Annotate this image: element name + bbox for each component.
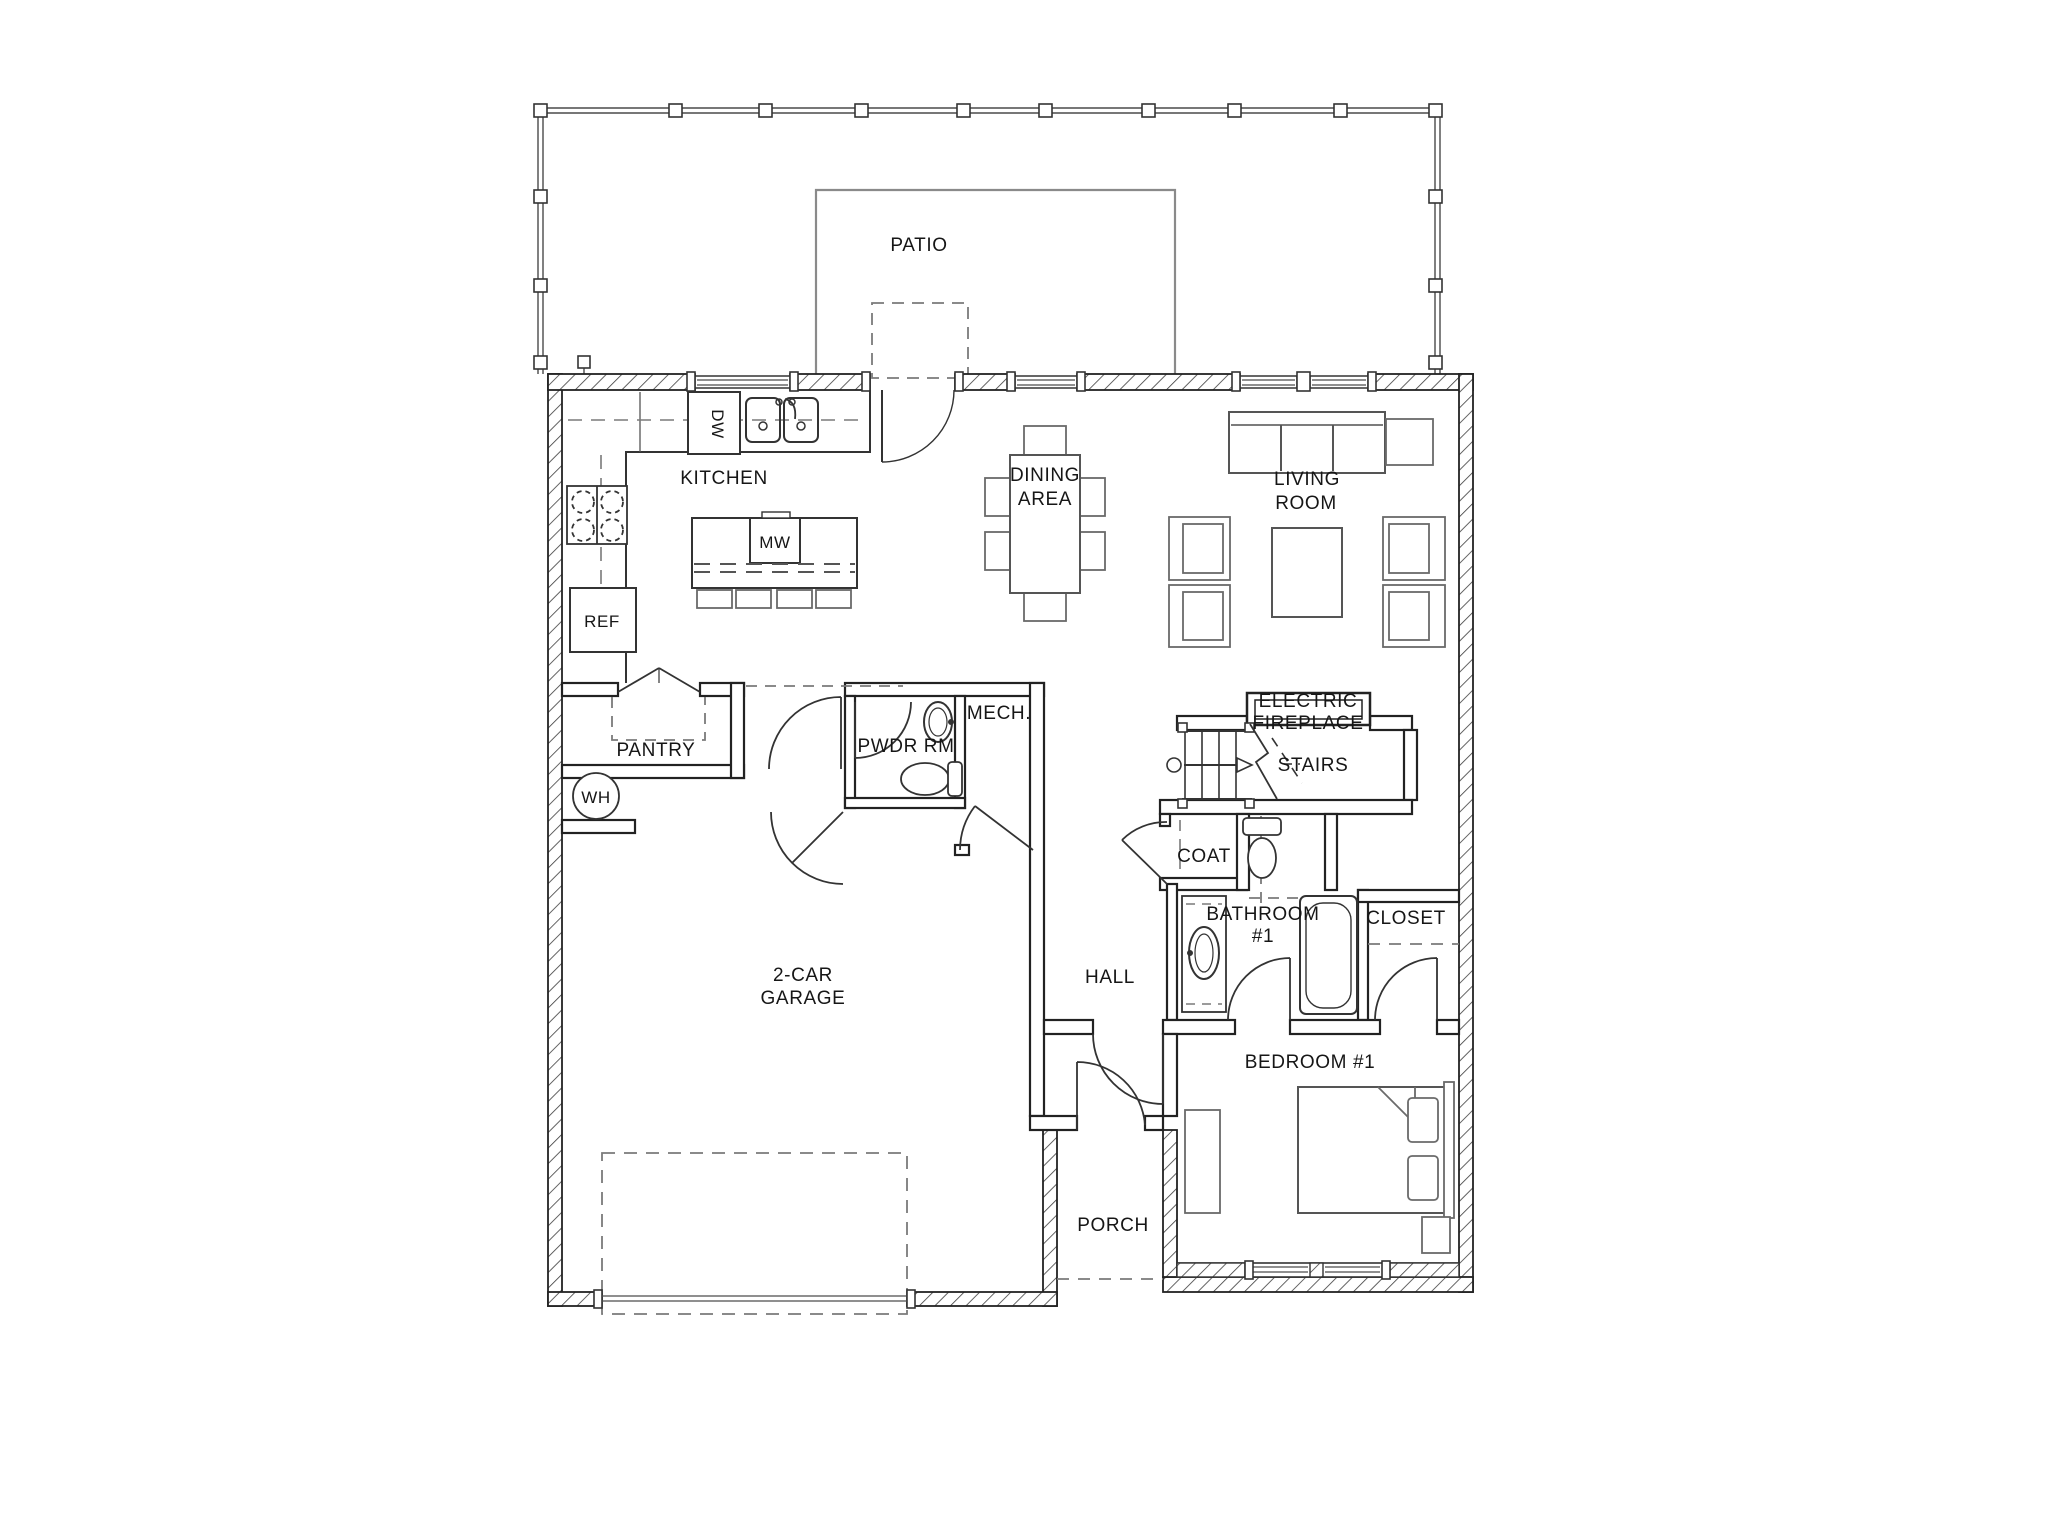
living-room-furniture [1169, 412, 1445, 647]
side-table [1386, 419, 1433, 465]
label-hall: HALL [1085, 967, 1135, 988]
kitchen-hall-door [769, 697, 841, 769]
bathroom-door [1228, 958, 1290, 1020]
mech-room [960, 806, 1033, 850]
label-living-2: ROOM [1275, 493, 1337, 514]
garage-entry-door [771, 812, 843, 884]
bedroom-windows [1177, 1261, 1459, 1279]
stair-newel [1167, 758, 1181, 772]
label-living-1: LIVING [1274, 469, 1340, 490]
patio-door [882, 390, 954, 462]
pantry-doors [618, 668, 700, 692]
fence-posts [534, 104, 1442, 369]
nightstand [1422, 1217, 1450, 1253]
pantry-shelves-dashed [612, 697, 705, 740]
label-pantry: PANTRY [617, 740, 696, 761]
bedroom-closet [1368, 944, 1459, 1020]
coat-closet [1122, 820, 1180, 884]
kitchen-island [692, 512, 857, 608]
label-fireplace-2: FIREPLACE [1253, 713, 1364, 734]
sofa [1229, 412, 1385, 473]
coffee-table [1272, 528, 1342, 617]
mud-hall-doors [746, 686, 903, 884]
label-patio: PATIO [890, 235, 947, 256]
label-fireplace-1: ELECTRIC [1259, 691, 1358, 712]
coat-door [1122, 822, 1167, 884]
label-bathroom-1: BATHROOM [1206, 904, 1319, 925]
stair-direction-arrow [1184, 758, 1252, 772]
garage-door-dashed [602, 1153, 907, 1314]
label-stairs: STAIRS [1278, 755, 1349, 776]
understair-toilet [1243, 816, 1322, 903]
label-mw: MW [759, 533, 790, 552]
label-bedroom: BEDROOM #1 [1245, 1052, 1376, 1073]
dining-set [985, 426, 1105, 621]
front-door [1077, 1062, 1145, 1130]
dresser [1185, 1110, 1220, 1213]
dining-chair [985, 532, 1010, 570]
label-dining-2: AREA [1018, 489, 1072, 510]
patio-fence [534, 104, 1442, 374]
label-garage-1: 2-CAR [773, 965, 833, 986]
bed [1298, 1082, 1454, 1218]
label-kitchen: KITCHEN [680, 468, 768, 489]
garage [594, 1153, 915, 1314]
label-porch: PORCH [1077, 1215, 1149, 1236]
label-coat: COAT [1177, 846, 1231, 867]
powder-toilet [901, 762, 962, 796]
floor-plan: PATIO KITCHEN DW MW REF DINING AREA LIVI… [0, 0, 2048, 1536]
dining-chair [1080, 532, 1105, 570]
label-ref: REF [584, 612, 620, 631]
dining-chair [1024, 426, 1066, 455]
dining-chair [1024, 592, 1066, 621]
armchair [1169, 585, 1230, 647]
label-closet: CLOSET [1366, 908, 1446, 929]
porch [1057, 1062, 1163, 1279]
dining-chair [1080, 478, 1105, 516]
mech-door [960, 806, 1033, 850]
pillow [1408, 1156, 1438, 1200]
label-wh: WH [581, 788, 611, 807]
pillow [1408, 1098, 1438, 1142]
label-pwdr: PWDR RM [857, 736, 954, 757]
patio-step-dashed [872, 303, 968, 378]
patio [816, 190, 1175, 378]
label-garage-2: GARAGE [761, 988, 846, 1009]
range [567, 486, 627, 544]
island-stools [697, 590, 851, 608]
label-dw: DW [708, 409, 727, 439]
garage-door [602, 1296, 907, 1301]
armchair [1383, 517, 1445, 580]
armchair [1169, 517, 1230, 580]
armchair [1383, 585, 1445, 647]
patio-outline [816, 190, 1175, 378]
label-bathroom-2: #1 [1252, 926, 1274, 947]
bedroom-door [1093, 1034, 1163, 1104]
label-dining-1: DINING [1010, 465, 1080, 486]
dining-chair [985, 478, 1010, 516]
closet-door [1375, 958, 1437, 1020]
label-mech: MECH. [967, 703, 1031, 724]
